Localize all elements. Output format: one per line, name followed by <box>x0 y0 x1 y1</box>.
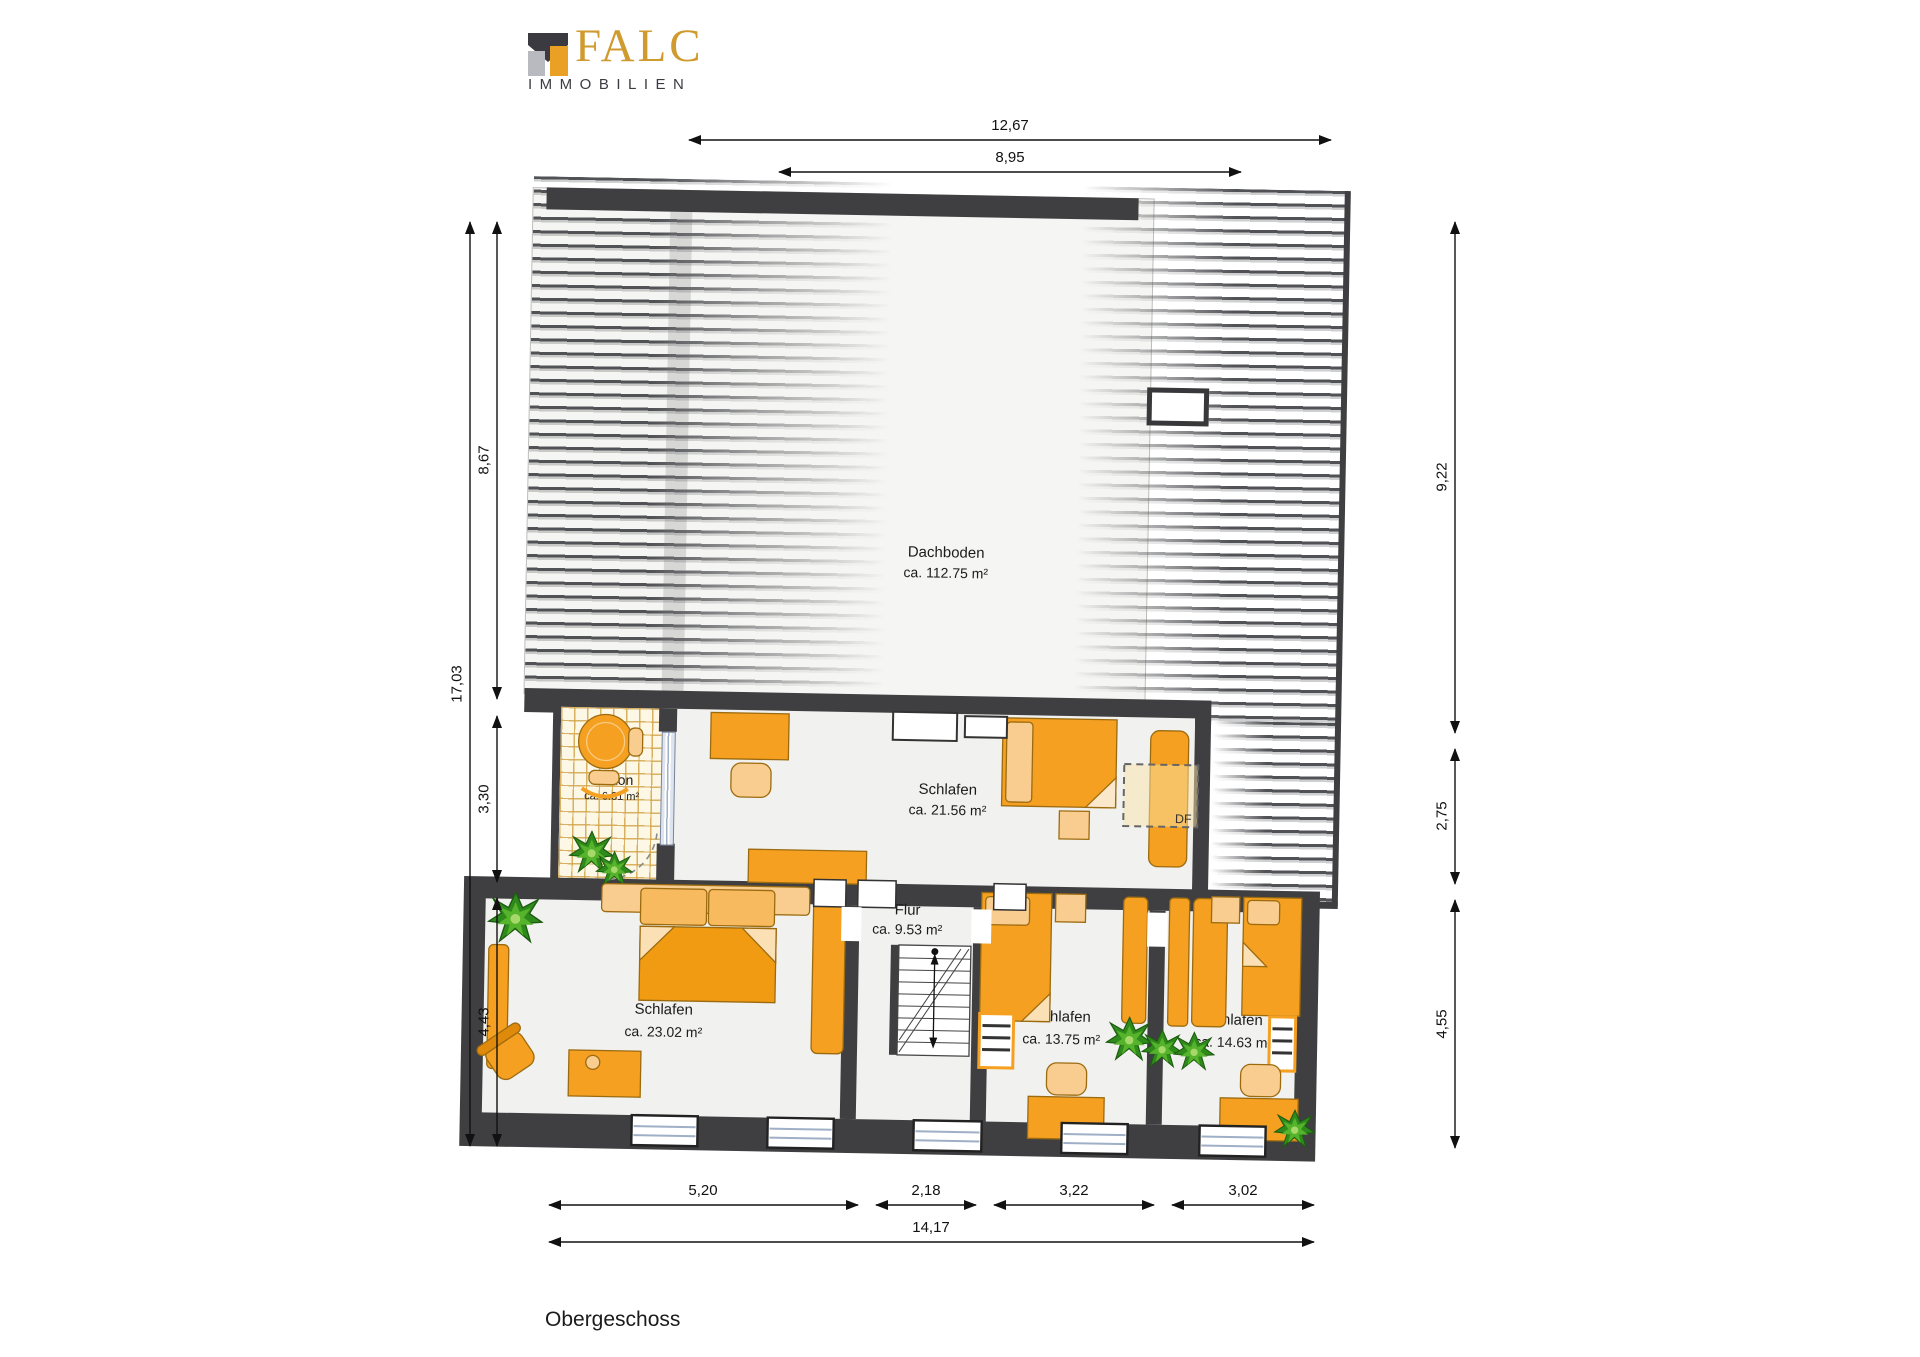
dim-label: 2,18 <box>911 1182 940 1199</box>
dim-label: 2,75 <box>1434 801 1451 830</box>
dim-label: 4,55 <box>1434 1009 1451 1038</box>
dimension-arrows <box>0 0 1920 1357</box>
dim-label: 3,02 <box>1228 1182 1257 1199</box>
dim-label: 14,17 <box>912 1219 950 1236</box>
dim-label: 8,95 <box>995 149 1024 166</box>
dim-label: 4,43 <box>476 1007 493 1036</box>
floor-title: Obergeschoss <box>545 1308 680 1332</box>
dim-label: 5,20 <box>688 1182 717 1199</box>
floorplan-page: FALC IMMOBILIEN Dachboden ca. 112.75 m² … <box>0 0 1920 1357</box>
dim-label: 3,22 <box>1059 1182 1088 1199</box>
dim-label: 3,30 <box>476 784 493 813</box>
dim-label: 12,67 <box>991 117 1029 134</box>
dim-label: 17,03 <box>449 665 466 703</box>
dim-label: 9,22 <box>1434 462 1451 491</box>
dim-label: 8,67 <box>476 445 493 474</box>
